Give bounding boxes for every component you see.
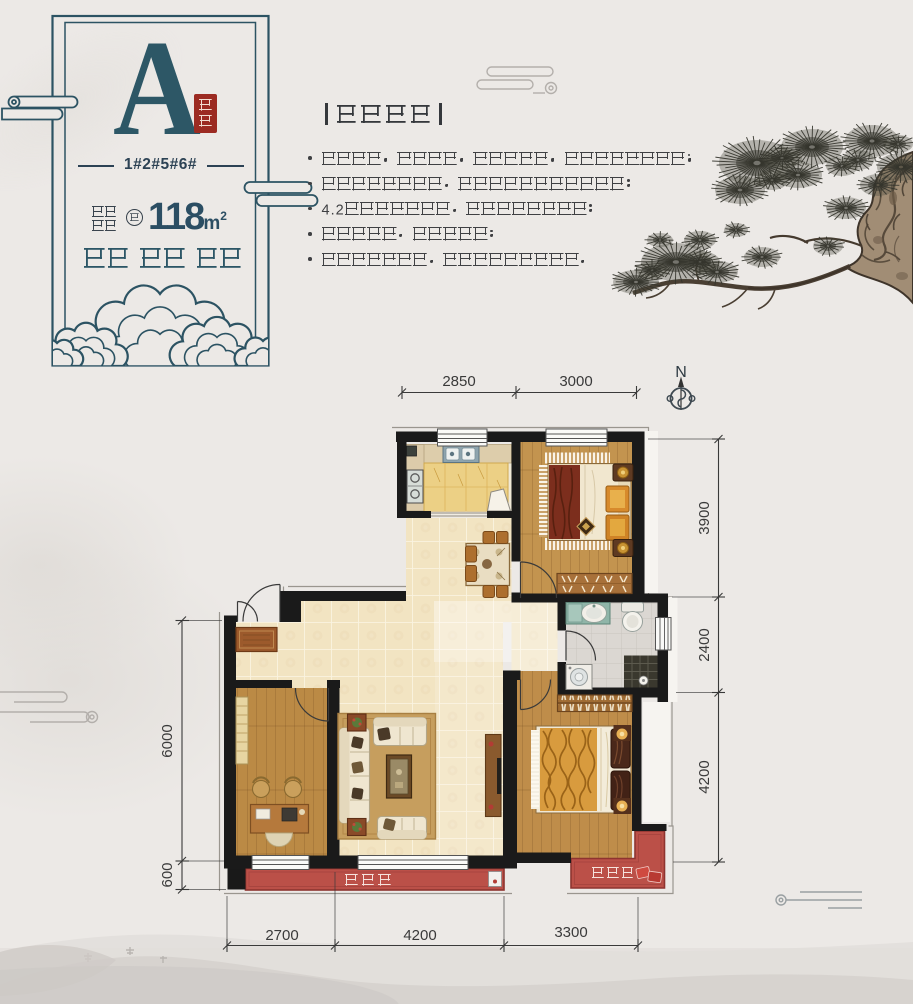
- svg-text:4200: 4200: [696, 760, 713, 793]
- svg-text:2850: 2850: [442, 373, 475, 390]
- svg-text:6000: 6000: [159, 724, 176, 757]
- svg-text:4200: 4200: [403, 927, 436, 944]
- svg-text:3000: 3000: [559, 373, 592, 390]
- svg-text:2700: 2700: [265, 927, 298, 944]
- svg-text:2400: 2400: [696, 628, 713, 661]
- svg-text:3900: 3900: [696, 501, 713, 534]
- svg-text:3300: 3300: [554, 924, 587, 941]
- svg-text:600: 600: [159, 862, 176, 887]
